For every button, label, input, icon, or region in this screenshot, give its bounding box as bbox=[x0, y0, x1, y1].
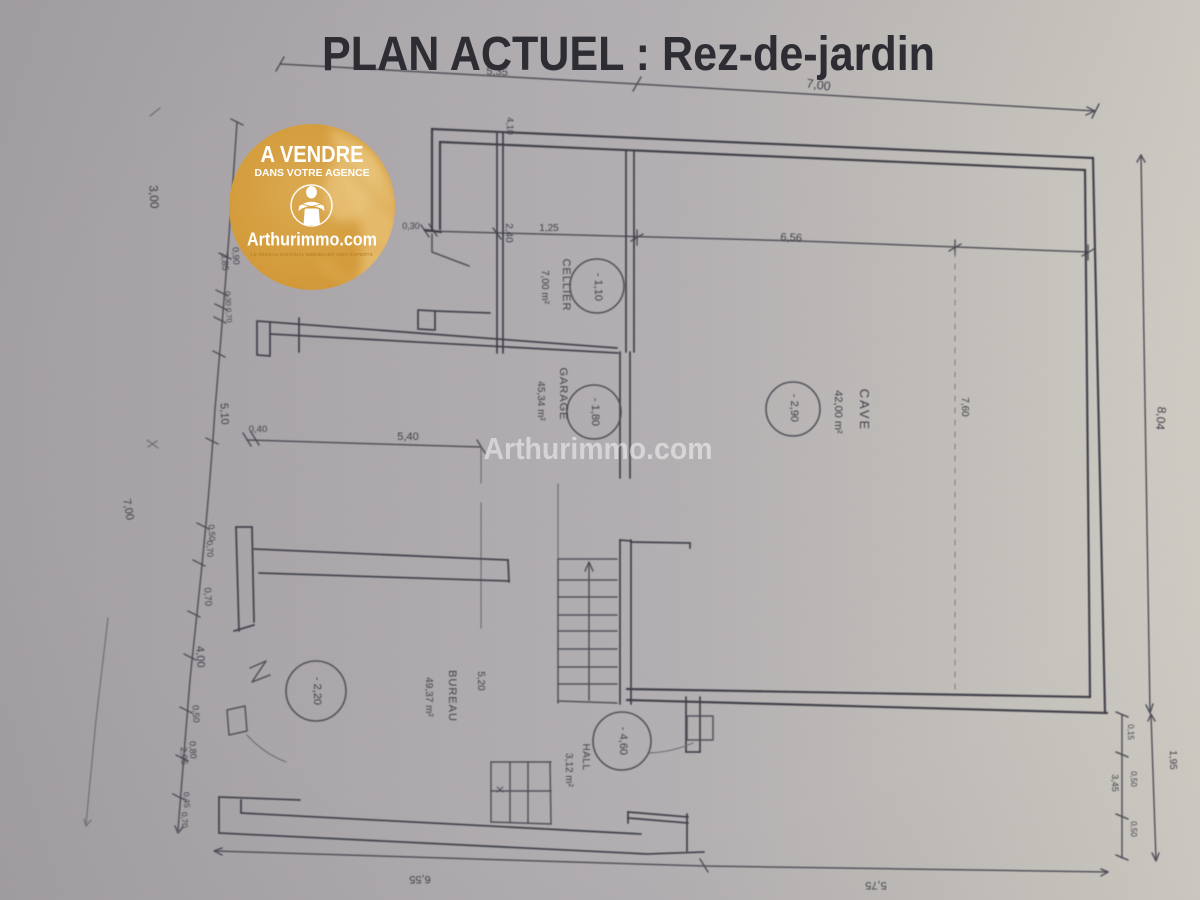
svg-text:5,10: 5,10 bbox=[217, 403, 230, 425]
svg-text:7,60: 7,60 bbox=[959, 397, 970, 417]
svg-text:0,45: 0,45 bbox=[182, 792, 192, 809]
svg-text:7,00 m²: 7,00 m² bbox=[539, 270, 550, 305]
svg-text:6,55: 6,55 bbox=[409, 873, 430, 885]
svg-text:- 4,60: - 4,60 bbox=[617, 727, 629, 755]
svg-text:0,15: 0,15 bbox=[1126, 724, 1135, 740]
svg-text:BUREAU: BUREAU bbox=[446, 670, 458, 722]
svg-text:GARAGE: GARAGE bbox=[557, 367, 569, 420]
svg-text:2,05: 2,05 bbox=[179, 747, 190, 765]
svg-text:5,40: 5,40 bbox=[397, 431, 418, 443]
svg-text:4,10: 4,10 bbox=[505, 117, 515, 135]
svg-text:0,90: 0,90 bbox=[231, 247, 242, 265]
svg-text:42,00 m²: 42,00 m² bbox=[832, 390, 844, 434]
svg-text:CAVE: CAVE bbox=[857, 389, 872, 431]
svg-text:3,85: 3,85 bbox=[220, 253, 231, 271]
svg-text:- 2,90: - 2,90 bbox=[788, 394, 800, 422]
svg-text:2,40: 2,40 bbox=[503, 223, 514, 243]
svg-text:Arthurimmo.com: Arthurimmo.com bbox=[484, 431, 713, 466]
svg-text:45,34 m²: 45,34 m² bbox=[535, 381, 546, 421]
svg-text:PLAN ACTUEL : Rez-de-jardin: PLAN ACTUEL : Rez-de-jardin bbox=[322, 28, 935, 81]
svg-text:0,50: 0,50 bbox=[1129, 821, 1138, 837]
svg-text:HALL: HALL bbox=[580, 743, 591, 770]
svg-text:5,20: 5,20 bbox=[475, 671, 486, 691]
svg-text:1,25: 1,25 bbox=[539, 223, 559, 234]
svg-text:5,75: 5,75 bbox=[865, 879, 886, 891]
svg-text:3,00: 3,00 bbox=[146, 185, 161, 209]
svg-text:0,70: 0,70 bbox=[205, 540, 216, 557]
svg-text:0,50: 0,50 bbox=[191, 705, 202, 723]
svg-text:0,40: 0,40 bbox=[249, 424, 268, 435]
svg-text:0,50: 0,50 bbox=[1129, 771, 1138, 787]
svg-text:Arthurimmo.com: Arthurimmo.com bbox=[247, 229, 377, 250]
svg-text:CELLIER: CELLIER bbox=[560, 259, 572, 312]
svg-text:3,45: 3,45 bbox=[1110, 774, 1120, 792]
svg-text:0,70: 0,70 bbox=[202, 587, 214, 606]
svg-text:0,70: 0,70 bbox=[180, 812, 190, 829]
svg-text:- 1,10: - 1,10 bbox=[592, 273, 604, 301]
svg-text:- 2,20: - 2,20 bbox=[311, 677, 323, 705]
svg-text:1,95: 1,95 bbox=[1167, 750, 1178, 770]
svg-text:0,50: 0,50 bbox=[207, 524, 218, 541]
svg-text:LE RÉSEAU NATIONAL IMMOBILIER: LE RÉSEAU NATIONAL IMMOBILIER 100% EXPER… bbox=[251, 251, 373, 257]
svg-text:49,37 m²: 49,37 m² bbox=[423, 677, 434, 717]
svg-text:8,04: 8,04 bbox=[1153, 406, 1169, 431]
svg-text:3,12 m²: 3,12 m² bbox=[563, 753, 574, 788]
svg-text:DANS VOTRE AGENCE: DANS VOTRE AGENCE bbox=[255, 167, 370, 179]
svg-text:0,30: 0,30 bbox=[402, 221, 420, 231]
svg-text:4,00: 4,00 bbox=[193, 646, 206, 668]
svg-text:0,30 0,70: 0,30 0,70 bbox=[223, 291, 234, 323]
svg-text:- 1,80: - 1,80 bbox=[589, 398, 601, 426]
svg-text:6,56: 6,56 bbox=[780, 231, 802, 244]
svg-text:A VENDRE: A VENDRE bbox=[261, 141, 364, 167]
